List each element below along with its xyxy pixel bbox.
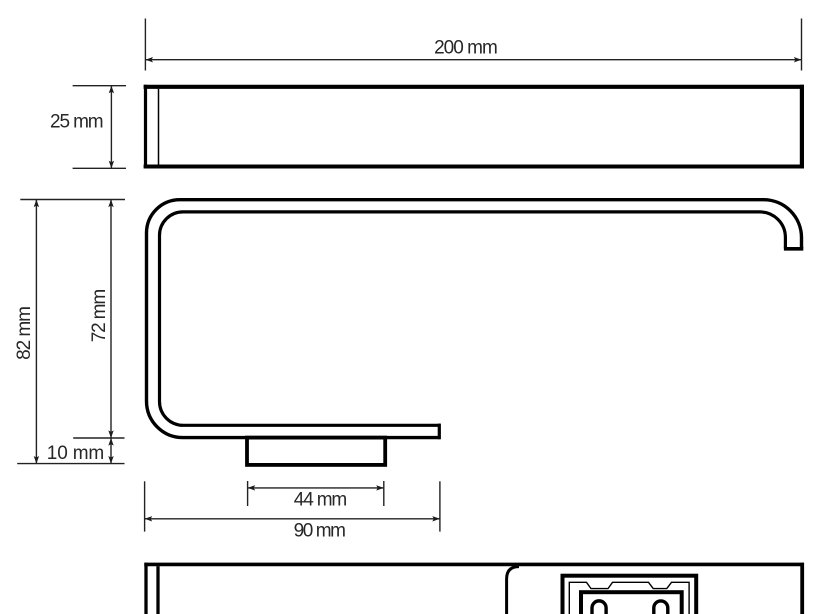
svg-text:25 mm: 25 mm: [50, 111, 104, 132]
svg-text:10 mm: 10 mm: [47, 443, 104, 464]
svg-text:82 mm: 82 mm: [14, 306, 35, 360]
svg-text:44 mm: 44 mm: [294, 489, 347, 510]
svg-text:72 mm: 72 mm: [89, 289, 110, 343]
svg-text:200 mm: 200 mm: [434, 38, 498, 59]
svg-text:90 mm: 90 mm: [294, 520, 346, 541]
